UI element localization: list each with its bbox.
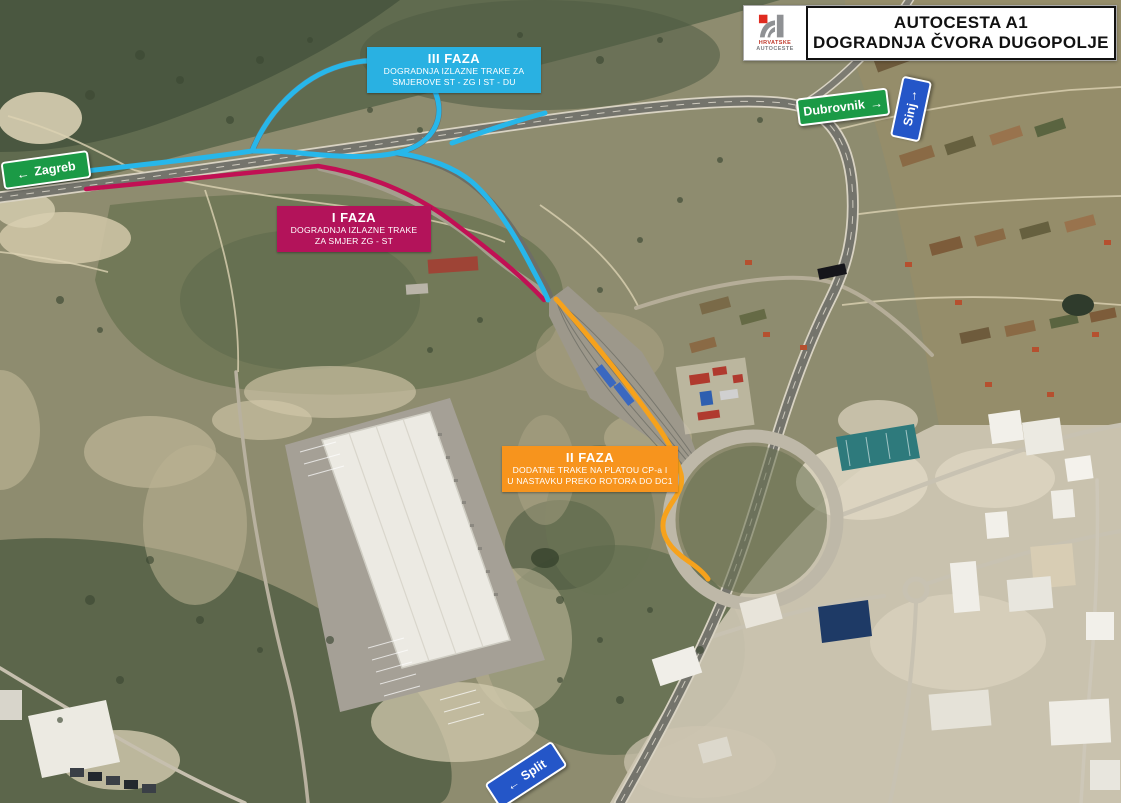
sign-label: Dubrovnik [803, 97, 866, 118]
navy-building [818, 600, 872, 643]
callout-faza3: III FAZA DOGRADNJA IZLAZNE TRAKE ZA SMJE… [367, 47, 541, 93]
title-line2: DOGRADNJA ČVORA DUGOPOLJE [813, 33, 1109, 53]
left-arrow-icon: ← [504, 775, 522, 793]
title-line1: AUTOCESTA A1 [894, 13, 1028, 33]
red-roof-facility [676, 357, 755, 434]
up-arrow-icon: ↑ [910, 89, 917, 102]
callout-line: DODATNE TRAKE NA PLATOU CP-a I [506, 465, 674, 476]
right-arrow-icon: → [869, 96, 883, 110]
title-panel: HRVATSKE AUTOCESTE AUTOCESTA A1 DOGRADNJ… [743, 5, 1117, 61]
satellite-map [0, 0, 1121, 803]
left-arrow-icon: ← [16, 166, 31, 181]
roundabout [669, 436, 837, 604]
callout-title: III FAZA [371, 51, 537, 66]
logo-text-line2: AUTOCESTE [756, 46, 793, 52]
hac-logo-icon [758, 14, 792, 40]
callout-line: U NASTAVKU PREKO ROTORA DO DC1 [506, 476, 674, 487]
project-map: III FAZA DOGRADNJA IZLAZNE TRAKE ZA SMJE… [0, 0, 1121, 803]
callout-line: DOGRADNJA IZLAZNE TRAKE ZA [371, 66, 537, 77]
callout-title: I FAZA [281, 210, 427, 225]
hrvatske-autoceste-logo: HRVATSKE AUTOCESTE [744, 6, 806, 60]
callout-title: II FAZA [506, 450, 674, 465]
callout-line: DOGRADNJA IZLAZNE TRAKE [281, 225, 427, 236]
callout-faza2: II FAZA DODATNE TRAKE NA PLATOU CP-a I U… [502, 446, 678, 492]
sign-label: Split [518, 757, 548, 783]
callout-line: SMJEROVE ST - ZG I ST - DU [371, 77, 537, 88]
callout-faza1: I FAZA DOGRADNJA IZLAZNE TRAKE ZA SMJER … [277, 206, 431, 252]
title-box: AUTOCESTA A1 DOGRADNJA ČVORA DUGOPOLJE [806, 6, 1116, 60]
sign-label: Zagreb [33, 159, 76, 179]
sign-label: Sinj [901, 102, 919, 127]
callout-line: ZA SMJER ZG - ST [281, 236, 427, 247]
